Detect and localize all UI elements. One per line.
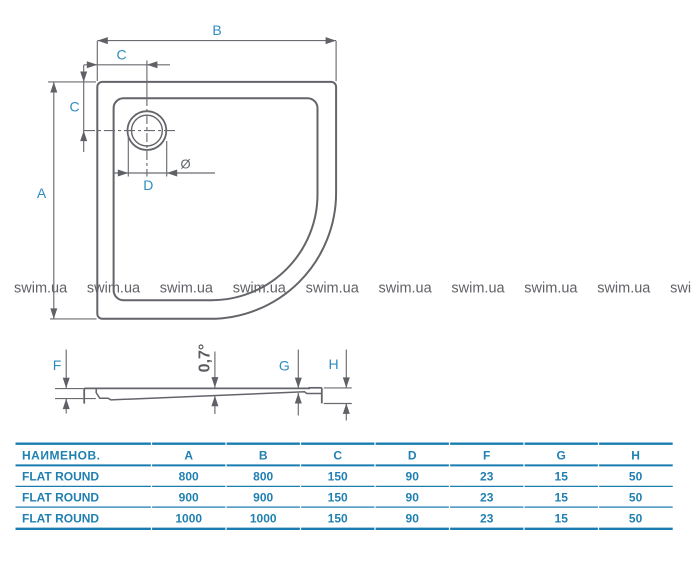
svg-text:G: G: [557, 449, 566, 463]
svg-text:90: 90: [406, 512, 420, 526]
svg-text:B: B: [212, 22, 221, 38]
svg-text:900: 900: [179, 490, 199, 504]
svg-text:swim.ua: swim.ua: [14, 281, 68, 297]
svg-text:D: D: [143, 177, 153, 193]
svg-text:swim.ua: swim.ua: [451, 281, 505, 297]
svg-text:Ø: Ø: [180, 157, 190, 172]
svg-text:1000: 1000: [175, 512, 202, 526]
svg-text:F: F: [53, 357, 62, 373]
svg-text:swim.ua: swim.ua: [524, 281, 578, 297]
svg-text:15: 15: [555, 490, 569, 504]
svg-text:swim.ua: swim.ua: [670, 281, 691, 297]
svg-text:swim.ua: swim.ua: [597, 281, 651, 297]
svg-text:0,7°: 0,7°: [197, 344, 214, 373]
svg-text:150: 150: [328, 512, 348, 526]
svg-text:FLAT ROUND: FLAT ROUND: [22, 469, 99, 483]
svg-text:C: C: [116, 47, 126, 63]
svg-text:swim.ua: swim.ua: [306, 281, 360, 297]
svg-text:FLAT ROUND: FLAT ROUND: [22, 512, 99, 526]
svg-text:800: 800: [179, 469, 199, 483]
svg-text:800: 800: [253, 469, 273, 483]
svg-text:15: 15: [555, 469, 569, 483]
svg-text:90: 90: [406, 469, 420, 483]
svg-text:A: A: [37, 185, 47, 201]
svg-text:A: A: [184, 449, 193, 463]
svg-text:23: 23: [480, 469, 494, 483]
svg-text:15: 15: [555, 512, 569, 526]
svg-text:90: 90: [406, 490, 420, 504]
svg-text:B: B: [259, 449, 268, 463]
svg-text:FLAT ROUND: FLAT ROUND: [22, 490, 99, 504]
svg-text:swim.ua: swim.ua: [87, 281, 141, 297]
svg-text:23: 23: [480, 490, 494, 504]
svg-text:50: 50: [629, 490, 643, 504]
svg-text:swim.ua: swim.ua: [160, 281, 214, 297]
svg-text:900: 900: [253, 490, 273, 504]
svg-text:50: 50: [629, 512, 643, 526]
svg-text:C: C: [69, 99, 79, 115]
svg-text:swim.ua: swim.ua: [379, 281, 433, 297]
svg-text:НАИМЕНОВ.: НАИМЕНОВ.: [22, 449, 100, 463]
svg-text:H: H: [329, 356, 339, 372]
svg-text:50: 50: [629, 469, 643, 483]
svg-text:1000: 1000: [250, 512, 277, 526]
svg-text:23: 23: [480, 512, 494, 526]
svg-text:D: D: [408, 449, 417, 463]
svg-text:150: 150: [328, 490, 348, 504]
svg-text:C: C: [333, 449, 342, 463]
svg-text:H: H: [631, 449, 640, 463]
svg-text:G: G: [279, 358, 290, 374]
svg-text:150: 150: [328, 469, 348, 483]
svg-text:swim.ua: swim.ua: [233, 281, 287, 297]
svg-text:F: F: [483, 449, 490, 463]
